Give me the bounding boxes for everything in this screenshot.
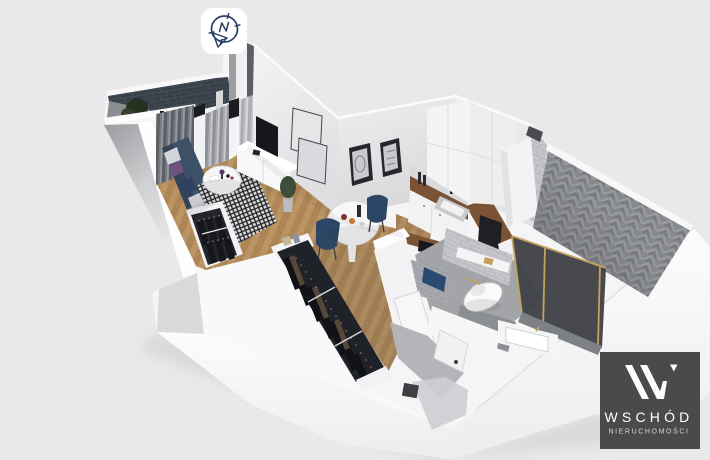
svg-text:NIERUCHOMOŚCI: NIERUCHOMOŚCI [608, 427, 689, 436]
svg-text:WSCHÓD: WSCHÓD [605, 409, 694, 425]
